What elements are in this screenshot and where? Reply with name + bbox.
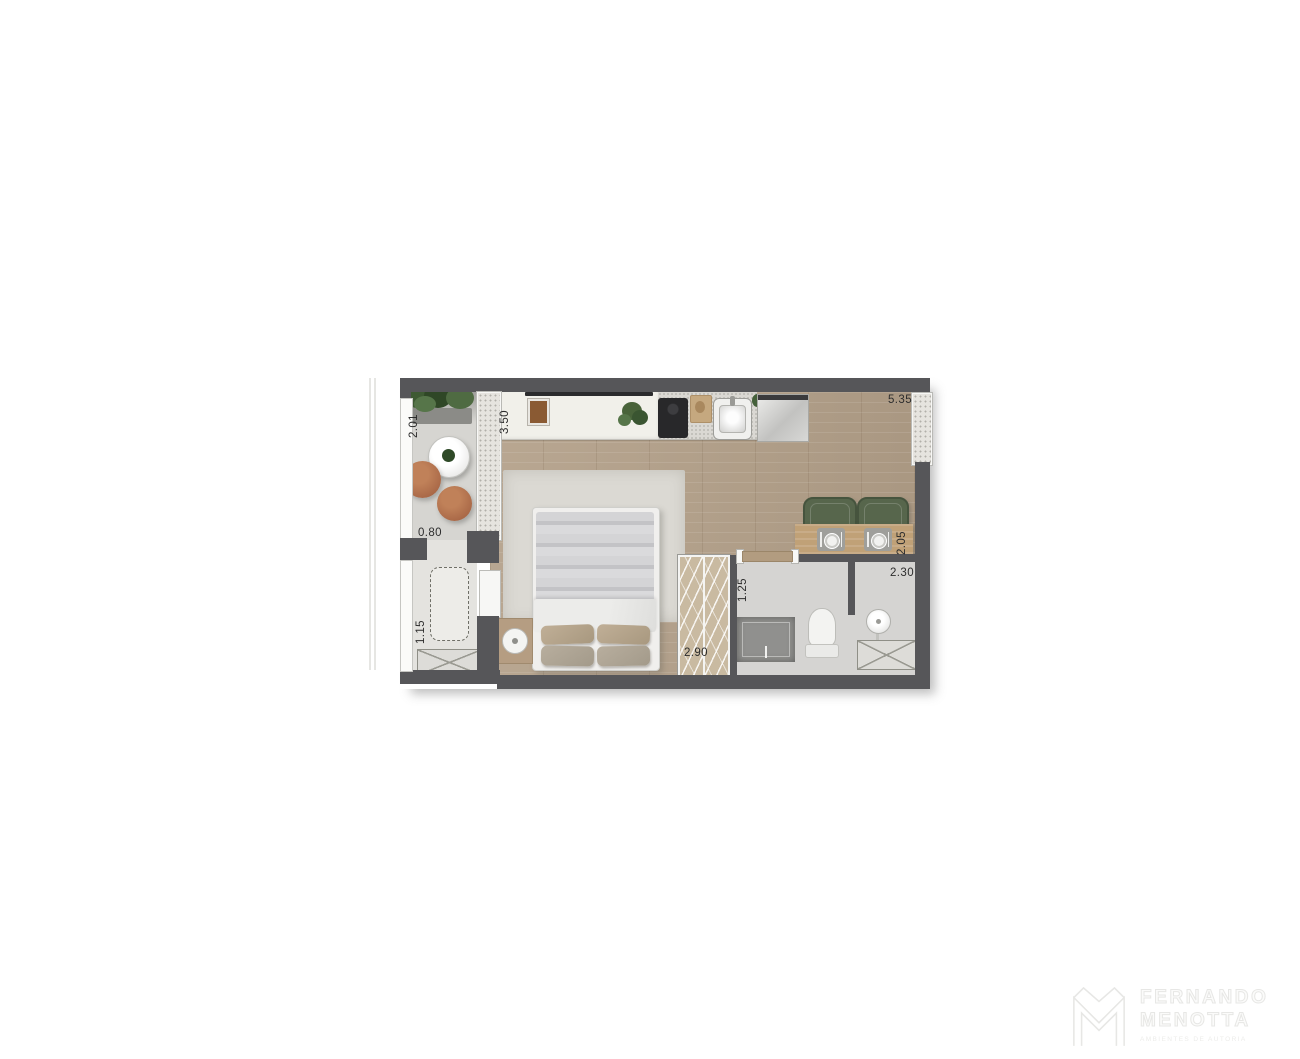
fork-icon — [820, 532, 822, 547]
bathroom-wall-left — [730, 555, 737, 675]
table-plant-icon — [442, 449, 455, 462]
dim-dining-depth: 2.05 — [897, 531, 909, 555]
bed-blanket — [536, 512, 654, 602]
knife-icon — [841, 532, 843, 547]
brand-first-name: FERNANDO — [1140, 987, 1268, 1009]
dim-balcony-depth: 2.01 — [409, 414, 421, 438]
wall-right — [915, 462, 930, 689]
floor-plan-page: 2.01 3.50 5.35 0.80 1.15 2.90 1.25 2.30 … — [0, 0, 1300, 1059]
brand-tagline: AMBIENTES DE AUTORIA — [1140, 1036, 1268, 1043]
toilet-bowl — [808, 608, 836, 648]
bathroom-wall-top — [797, 554, 915, 562]
dim-wardrobe-run: 2.90 — [684, 648, 708, 660]
pillow — [541, 624, 595, 645]
neighbour-boundary-line — [369, 378, 371, 670]
balcony-sliding-door — [477, 392, 501, 540]
interior-wall-stub — [467, 531, 499, 563]
knife-icon — [888, 532, 890, 547]
wall-passage-stub — [400, 538, 427, 560]
cooktop — [658, 398, 688, 438]
wardrobe — [678, 555, 730, 680]
kitchen-sink — [713, 398, 752, 440]
faucet-icon — [730, 396, 735, 406]
neighbour-boundary-line — [374, 378, 376, 670]
plate-icon — [871, 533, 887, 549]
bathroom-partition — [848, 558, 855, 615]
utility-window — [400, 560, 413, 672]
future-furniture-dashed — [430, 567, 469, 641]
place-setting — [864, 528, 892, 551]
pouf — [437, 486, 472, 521]
apartment-floor-plan: 2.01 3.50 5.35 0.80 1.15 2.90 1.25 2.30 … — [400, 378, 930, 689]
utility-door — [479, 570, 501, 618]
toilet-tank — [805, 644, 839, 658]
wall-top — [400, 378, 930, 392]
window-right — [912, 393, 932, 465]
brand-logo: FERNANDO MENOTTA AMBIENTES DE AUTORIA — [1070, 976, 1300, 1054]
pillow — [597, 646, 650, 667]
dim-bath-entry: 1.25 — [738, 578, 750, 602]
dim-living-length: 5.35 — [868, 395, 912, 407]
refrigerator — [757, 394, 809, 442]
interior-wall-lower — [477, 616, 499, 675]
fork-icon — [867, 532, 869, 547]
dim-passage-width: 0.80 — [418, 528, 442, 540]
brand-last-name: MENOTTA — [1140, 1010, 1268, 1032]
place-setting — [817, 528, 845, 551]
picture-frame — [528, 399, 549, 425]
menotta-monogram-icon — [1070, 982, 1128, 1048]
cutting-board — [690, 395, 712, 423]
bathroom-sink — [866, 609, 891, 634]
shower-tray — [737, 617, 795, 662]
dim-kitchen-run: 3.50 — [500, 410, 512, 434]
sink-basin — [719, 405, 746, 433]
planter-foliage — [414, 396, 436, 412]
wall-shelf — [525, 392, 653, 396]
bathroom-sliding-door — [742, 551, 793, 562]
pillow — [541, 646, 594, 667]
wall-bottom — [497, 675, 930, 689]
plant-icon — [632, 410, 648, 425]
dim-utility-width: 1.15 — [416, 620, 428, 644]
tray — [502, 628, 528, 654]
dim-bath-width: 2.30 — [870, 568, 914, 580]
plate-icon — [824, 533, 840, 549]
pillow — [597, 624, 651, 645]
brand-text: FERNANDO MENOTTA AMBIENTES DE AUTORIA — [1140, 987, 1268, 1042]
duct-shaft — [857, 640, 916, 670]
plant-icon — [618, 414, 631, 426]
toilet — [805, 608, 838, 658]
